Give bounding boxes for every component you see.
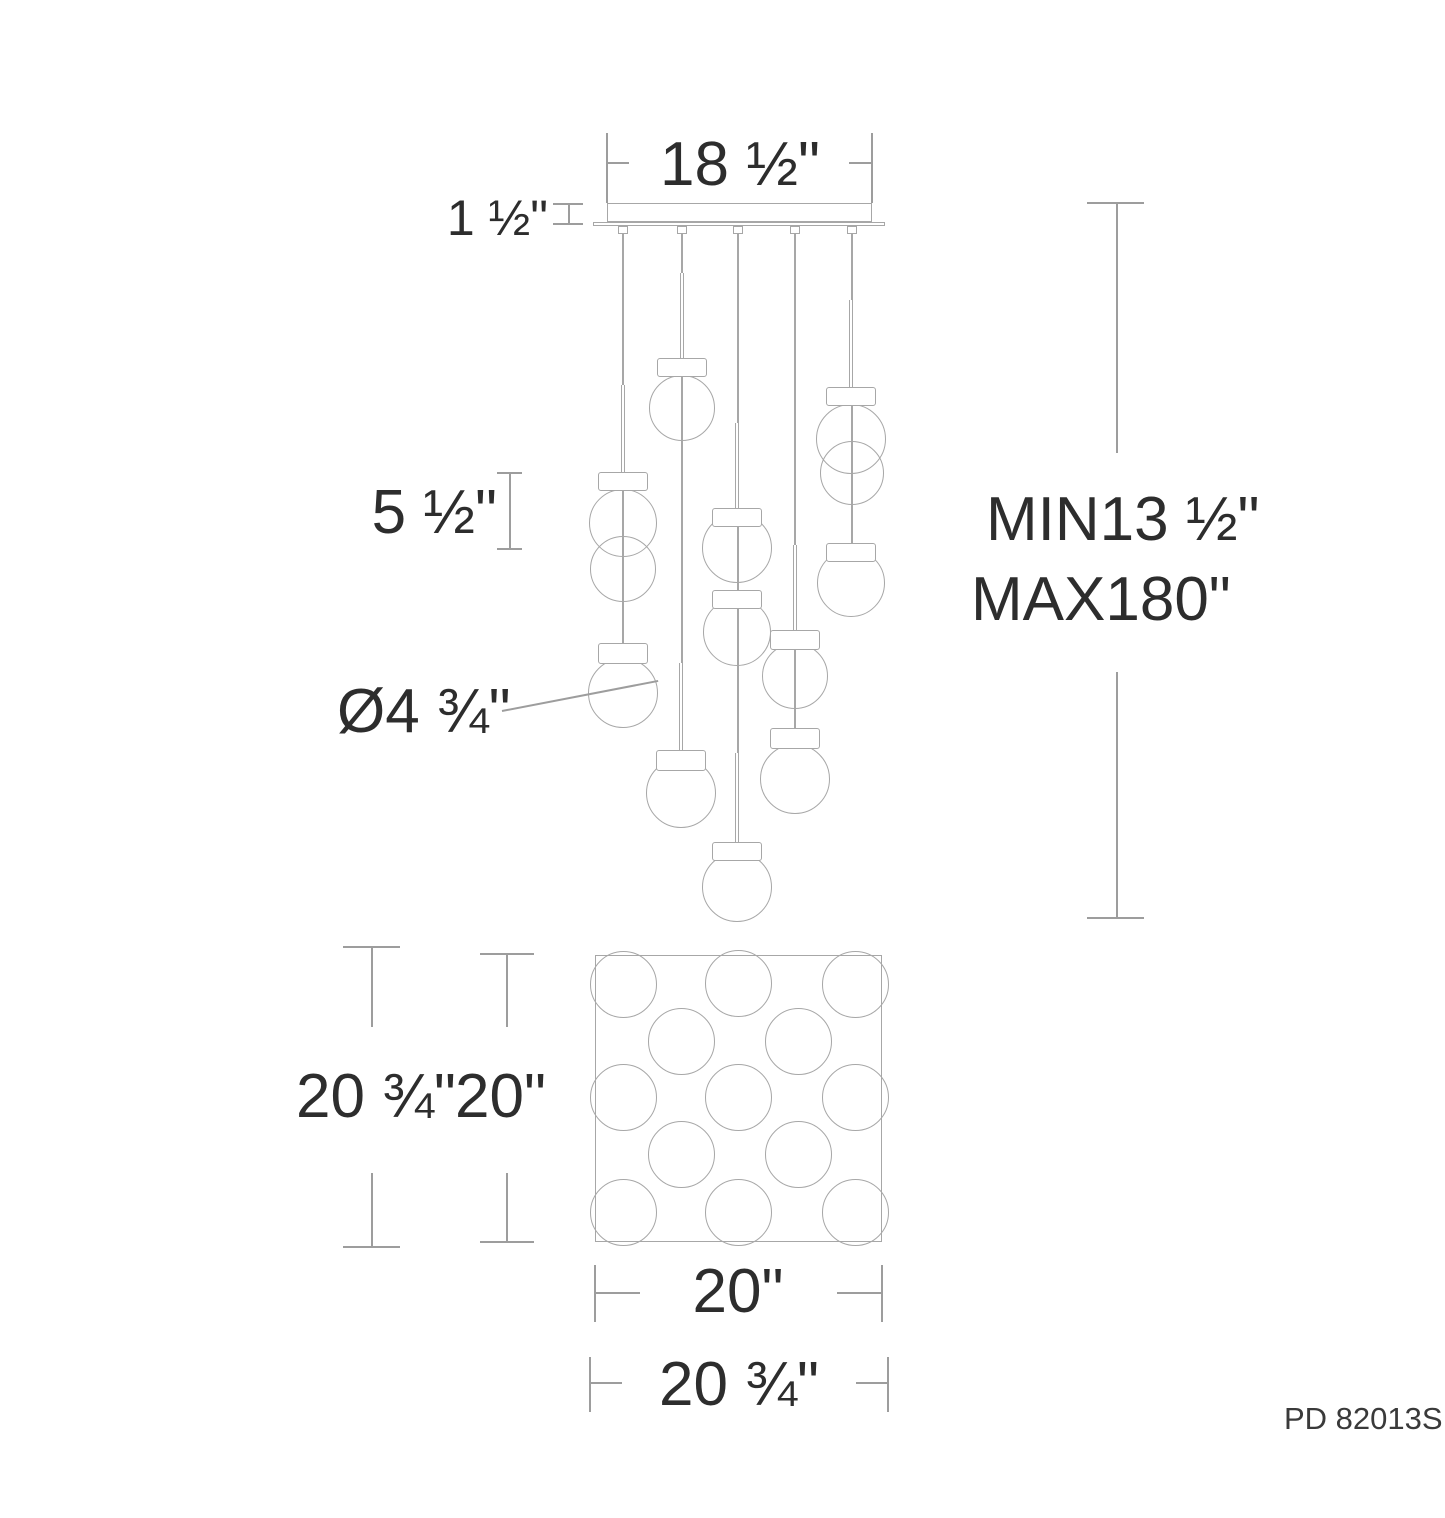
- dimension-label-plan-bottom-width: 20": [588, 1261, 888, 1323]
- canopy-connector: [790, 226, 800, 234]
- pendant-socket: [770, 630, 820, 650]
- pendant-socket: [656, 750, 706, 771]
- dimension-tick: [553, 203, 583, 205]
- pendant-globe: [762, 643, 828, 709]
- pendant-globe: [702, 852, 772, 922]
- dimension-line: [568, 204, 570, 224]
- pendant-dimension-diagram: 18 ½" 1 ½" 5 ½" Ø4 ¾" MIN13 ½" MAX180" 2…: [0, 0, 1445, 1518]
- plan-view-globe: [705, 1064, 772, 1131]
- dimension-label-plan-bottom-overall: 20 ¾": [589, 1354, 889, 1416]
- pendant-stem: [735, 423, 739, 508]
- canopy-connector: [847, 226, 857, 234]
- dimension-tick: [497, 548, 522, 550]
- pendant-globe: [649, 375, 715, 441]
- dimension-tick: [480, 1241, 534, 1243]
- plan-view-globe: [590, 951, 657, 1018]
- plan-view-globe: [648, 1008, 715, 1075]
- pendant-stem: [735, 753, 739, 842]
- plan-view-globe: [765, 1121, 832, 1188]
- dimension-tick: [553, 223, 583, 225]
- plan-view-globe: [705, 950, 772, 1017]
- pendant-globe: [590, 536, 656, 602]
- canopy-connector: [677, 226, 687, 234]
- dimension-line: [506, 1173, 508, 1243]
- dimension-label-unit-height: 5 ½": [297, 482, 497, 544]
- pendant-stem: [679, 663, 683, 750]
- plan-view-globe: [590, 1179, 657, 1246]
- dimension-label-canopy-width: 18 ½": [590, 134, 890, 196]
- canopy: [607, 203, 872, 222]
- dimension-label-plan-side-overall: 20 ¾": [296, 1066, 456, 1128]
- dimension-line: [371, 947, 373, 1027]
- dimension-tick: [1087, 917, 1144, 919]
- dimension-line: [1116, 203, 1118, 453]
- pendant-socket: [712, 842, 762, 861]
- dimension-tick: [497, 472, 522, 474]
- pendant-stem: [621, 385, 625, 472]
- canopy-connector: [618, 226, 628, 234]
- plan-view-globe: [705, 1179, 772, 1246]
- plan-view-globe: [648, 1121, 715, 1188]
- plan-view-globe: [765, 1008, 832, 1075]
- dimension-label-globe-diameter: Ø4 ¾": [337, 681, 511, 743]
- plan-view-globe: [822, 1064, 889, 1131]
- pendant-stem: [680, 273, 684, 358]
- pendant-socket: [712, 590, 762, 609]
- canopy-connector: [733, 226, 743, 234]
- plan-view-globe: [590, 1064, 657, 1131]
- dimension-tick: [343, 1246, 400, 1248]
- dimension-label-canopy-height: 1 ½": [348, 193, 548, 243]
- part-number: PD 82013S: [1284, 1403, 1443, 1434]
- dimension-label-suspension-min: MIN13 ½": [986, 489, 1260, 551]
- pendant-socket: [770, 728, 820, 749]
- dimension-line: [371, 1173, 373, 1248]
- pendant-stem: [793, 545, 797, 630]
- plan-view-globe: [822, 1179, 889, 1246]
- pendant-socket: [598, 643, 648, 664]
- pendant-socket: [598, 472, 648, 491]
- pendant-globe: [820, 441, 884, 505]
- dimension-line: [509, 473, 511, 550]
- pendant-socket: [826, 543, 876, 562]
- pendant-socket: [826, 387, 876, 406]
- dimension-label-plan-side: 20": [455, 1066, 546, 1128]
- dimension-line: [1116, 672, 1118, 918]
- plan-view-globe: [822, 951, 889, 1018]
- dimension-line: [506, 954, 508, 1027]
- pendant-globe: [760, 744, 830, 814]
- dimension-label-suspension-max: MAX180": [971, 569, 1231, 631]
- pendant-socket: [712, 508, 762, 527]
- pendant-socket: [657, 358, 707, 377]
- pendant-stem: [849, 300, 853, 387]
